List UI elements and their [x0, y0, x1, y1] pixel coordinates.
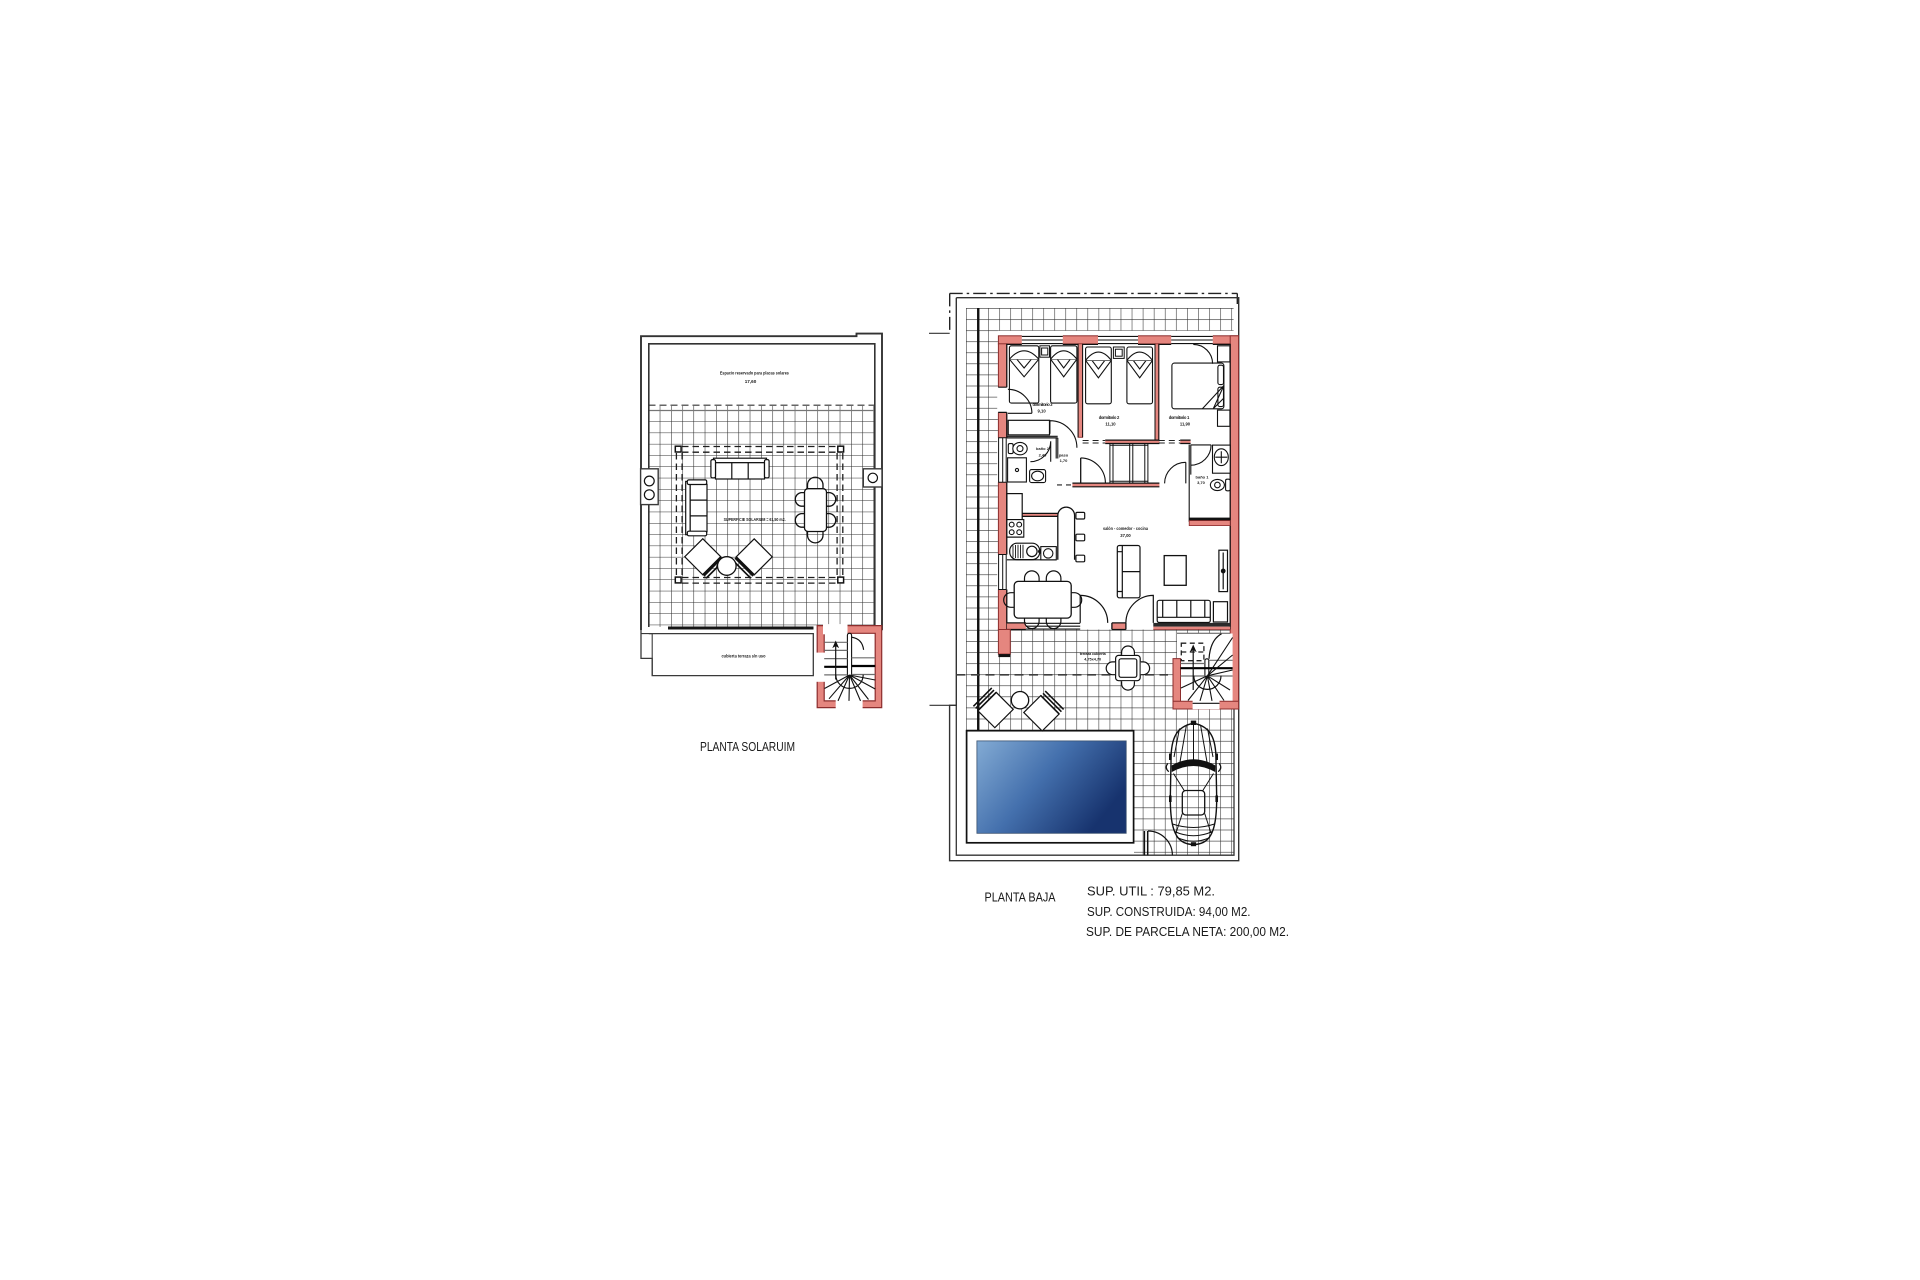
svg-text:PLANTA BAJA: PLANTA BAJA	[985, 890, 1056, 905]
svg-text:9,10: 9,10	[1038, 409, 1047, 414]
svg-text:17,60: 17,60	[745, 379, 757, 384]
svg-text:SUPERFICIE SOLARIUM = 61,50 m2: SUPERFICIE SOLARIUM = 61,50 m2.	[724, 517, 786, 522]
svg-text:baño 1: baño 1	[1196, 475, 1210, 480]
svg-text:SUP. UTIL : 79,85 M2.: SUP. UTIL : 79,85 M2.	[1087, 883, 1215, 898]
svg-text:cubierta terraza s/n uso: cubierta terraza s/n uso	[722, 654, 766, 659]
svg-text:4,75x4,70: 4,75x4,70	[1084, 657, 1101, 661]
svg-text:SUP. DE PARCELA NETA: 200,00 M: SUP. DE PARCELA NETA: 200,00 M2.	[1086, 924, 1289, 939]
svg-text:1,70: 1,70	[1060, 458, 1069, 463]
svg-text:Espacio reservado para placas: Espacio reservado para placas solares	[720, 371, 789, 376]
svg-text:terraza cubierta: terraza cubierta	[1080, 652, 1107, 656]
svg-text:dormitorio 1: dormitorio 1	[1169, 415, 1190, 420]
svg-text:11,90: 11,90	[1180, 422, 1191, 427]
svg-text:11,10: 11,10	[1105, 422, 1116, 427]
svg-text:37,00: 37,00	[1120, 533, 1131, 538]
svg-text:PLANTA SOLARUIM: PLANTA SOLARUIM	[700, 740, 795, 754]
svg-text:salón - comedor - cocina: salón - comedor - cocina	[1103, 526, 1149, 531]
svg-text:dormitorio 2: dormitorio 2	[1099, 415, 1120, 420]
svg-text:SUP. CONSTRUIDA: 94,00 M2.: SUP. CONSTRUIDA: 94,00 M2.	[1087, 904, 1251, 919]
svg-text:2,40: 2,40	[1039, 453, 1048, 458]
svg-text:3,70: 3,70	[1197, 480, 1206, 485]
svg-text:dormitorio 3: dormitorio 3	[1033, 402, 1054, 407]
svg-text:baño 2: baño 2	[1036, 446, 1050, 451]
svg-text:paso: paso	[1059, 453, 1069, 458]
